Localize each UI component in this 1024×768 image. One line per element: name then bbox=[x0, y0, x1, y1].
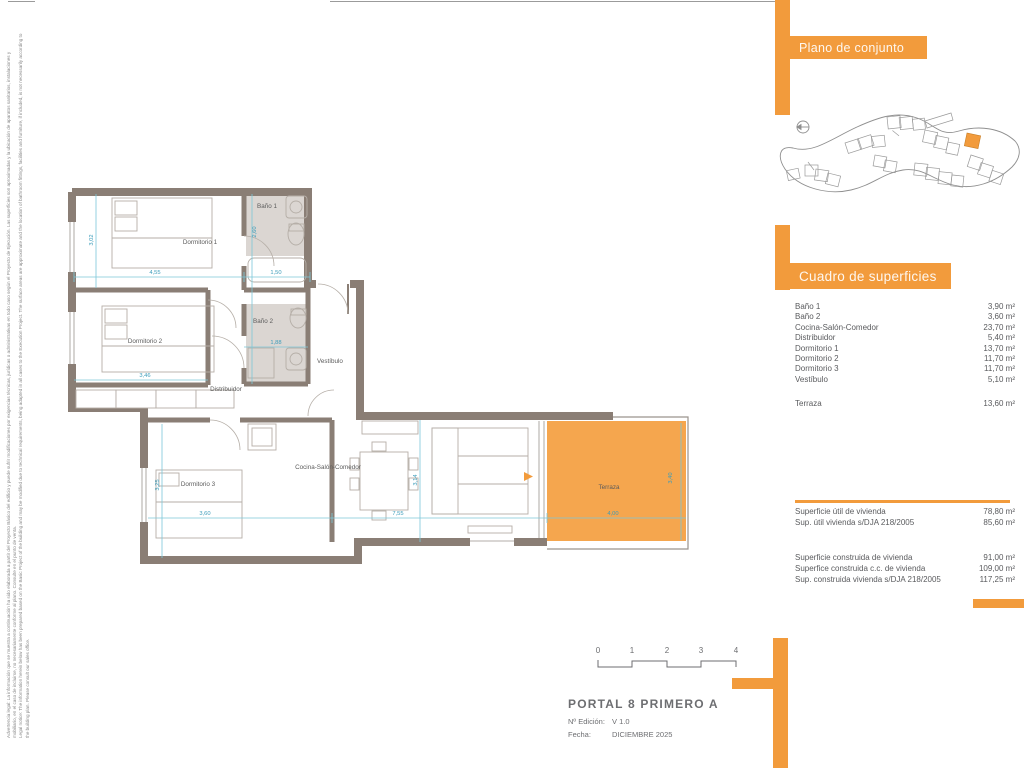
table-row: Dormitorio 211,70 m² bbox=[795, 354, 1015, 364]
dim-dorm1-width: 4,55 bbox=[149, 270, 160, 276]
dim-bath1-depth: 2,60 bbox=[252, 226, 258, 237]
top-rule-right bbox=[330, 1, 775, 2]
unit-title: PORTAL 8 PRIMERO A bbox=[568, 697, 788, 711]
date-label: Fecha: bbox=[568, 728, 612, 741]
site-highlighted-building bbox=[964, 133, 980, 149]
dim-dorm3-depth: 3,25 bbox=[155, 479, 161, 490]
built-surface-block: Superficie construida de vivienda91,00 m… bbox=[795, 553, 1015, 585]
date-row: Fecha: DICIEMBRE 2025 bbox=[568, 728, 788, 741]
scale-tick-2: 2 bbox=[665, 646, 670, 655]
dim-bath2-width: 1,88 bbox=[270, 340, 281, 346]
table-row: Baño 23,60 m² bbox=[795, 312, 1015, 322]
scale-tick-4: 4 bbox=[734, 646, 739, 655]
site-panel-banner: Plano de conjunto bbox=[790, 36, 927, 59]
useful-surface-block: Superficie útil de vivienda78,80 m² Sup.… bbox=[795, 507, 1015, 529]
edition-value: V 1.0 bbox=[612, 715, 630, 728]
surfaces-table: Baño 13,90 m² Baño 23,60 m² Cocina-Salón… bbox=[795, 302, 1015, 385]
terrace-glass-door bbox=[539, 421, 544, 540]
table-row: Distribuidor5,40 m² bbox=[795, 333, 1015, 343]
bath1-floor bbox=[246, 194, 308, 256]
room-label-bano2: Baño 2 bbox=[253, 318, 273, 325]
terrace-access-arrow-icon bbox=[524, 472, 533, 481]
scale-tick-0: 0 bbox=[596, 646, 601, 655]
table-row: Superficie construida de vivienda91,00 m… bbox=[795, 553, 1015, 564]
dim-terrace-width: 4,00 bbox=[607, 511, 618, 517]
summary-divider bbox=[795, 500, 1010, 503]
terrace-area bbox=[547, 421, 686, 541]
terrace-row: Terraza13,60 m² bbox=[795, 399, 1015, 409]
surfaces-title: Cuadro de superficies bbox=[790, 269, 937, 284]
edition-row: Nº Edición: V 1.0 bbox=[568, 715, 788, 728]
floorplan-sheet: { "accent": "#F29B3C", "legal": { "es": … bbox=[0, 0, 1024, 768]
room-label-cocina-salon: Cocina-Salón-Comedor bbox=[295, 464, 361, 471]
table-row: Superfice construida c.c. de vivienda109… bbox=[795, 564, 1015, 575]
dim-dorm1-depth: 3,02 bbox=[89, 234, 95, 245]
room-label-dormitorio1: Dormitorio 1 bbox=[183, 239, 218, 246]
table-row: Sup. útil vivienda s/DJA 218/200585,60 m… bbox=[795, 518, 1015, 529]
site-buildings bbox=[786, 113, 1006, 187]
scale-tick-1: 1 bbox=[630, 646, 635, 655]
scale-bar: 0 1 2 3 4 bbox=[590, 643, 748, 673]
table-row: Dormitorio 311,70 m² bbox=[795, 364, 1015, 374]
room-label-distribuidor: Distribuidor bbox=[210, 386, 242, 393]
room-label-dormitorio3: Dormitorio 3 bbox=[181, 481, 216, 488]
room-label-bano1: Baño 1 bbox=[257, 203, 277, 210]
edition-label: Nº Edición: bbox=[568, 715, 612, 728]
table-row: Superficie útil de vivienda78,80 m² bbox=[795, 507, 1015, 518]
top-rule-left bbox=[8, 1, 35, 2]
exterior-walls bbox=[72, 192, 613, 560]
surfaces-banner: Cuadro de superficies bbox=[790, 263, 951, 289]
table-row: Vestíbulo5,10 m² bbox=[795, 375, 1015, 385]
dim-bath1-width: 1,50 bbox=[270, 270, 281, 276]
dim-salon-depth: 3,14 bbox=[413, 474, 419, 486]
scale-tick-3: 3 bbox=[699, 646, 704, 655]
table-row: Sup. construida vivienda s/DJA 218/20051… bbox=[795, 575, 1015, 586]
compass-icon bbox=[797, 121, 809, 133]
site-plan bbox=[775, 95, 1024, 207]
site-panel-title: Plano de conjunto bbox=[790, 41, 904, 55]
summary-accent-bar bbox=[973, 599, 1024, 608]
furniture bbox=[102, 196, 528, 538]
room-label-terraza: Terraza bbox=[599, 484, 620, 491]
legal-text-en: Legal notice: The information herein bel… bbox=[18, 32, 30, 738]
dim-salon-width: 7,55 bbox=[392, 511, 403, 517]
table-row: Cocina-Salón-Comedor23,70 m² bbox=[795, 323, 1015, 333]
dim-terrace-depth: 3,40 bbox=[668, 472, 674, 483]
room-label-vestibulo: Vestíbulo bbox=[317, 358, 343, 365]
dim-dorm3-width: 3,60 bbox=[199, 511, 210, 517]
table-row: Dormitorio 113,70 m² bbox=[795, 344, 1015, 354]
legal-disclaimer: Advertencia legal: La información que se… bbox=[6, 32, 31, 738]
entrance-door bbox=[316, 279, 350, 314]
date-value: DICIEMBRE 2025 bbox=[612, 728, 672, 741]
apartment-floorplan: 4,55 1,50 3,02 2,60 3,46 1,88 3,60 3,25 … bbox=[60, 180, 740, 600]
legal-text-es: Advertencia legal: La información que se… bbox=[6, 32, 18, 738]
surfaces-frame-bar bbox=[775, 225, 790, 290]
bottom-frame-stub bbox=[732, 678, 773, 689]
table-row: Baño 13,90 m² bbox=[795, 302, 1015, 312]
room-label-dormitorio2: Dormitorio 2 bbox=[128, 338, 163, 345]
title-block: PORTAL 8 PRIMERO A Nº Edición: V 1.0 Fec… bbox=[568, 697, 788, 741]
dim-dorm2-width: 3,46 bbox=[139, 373, 150, 379]
